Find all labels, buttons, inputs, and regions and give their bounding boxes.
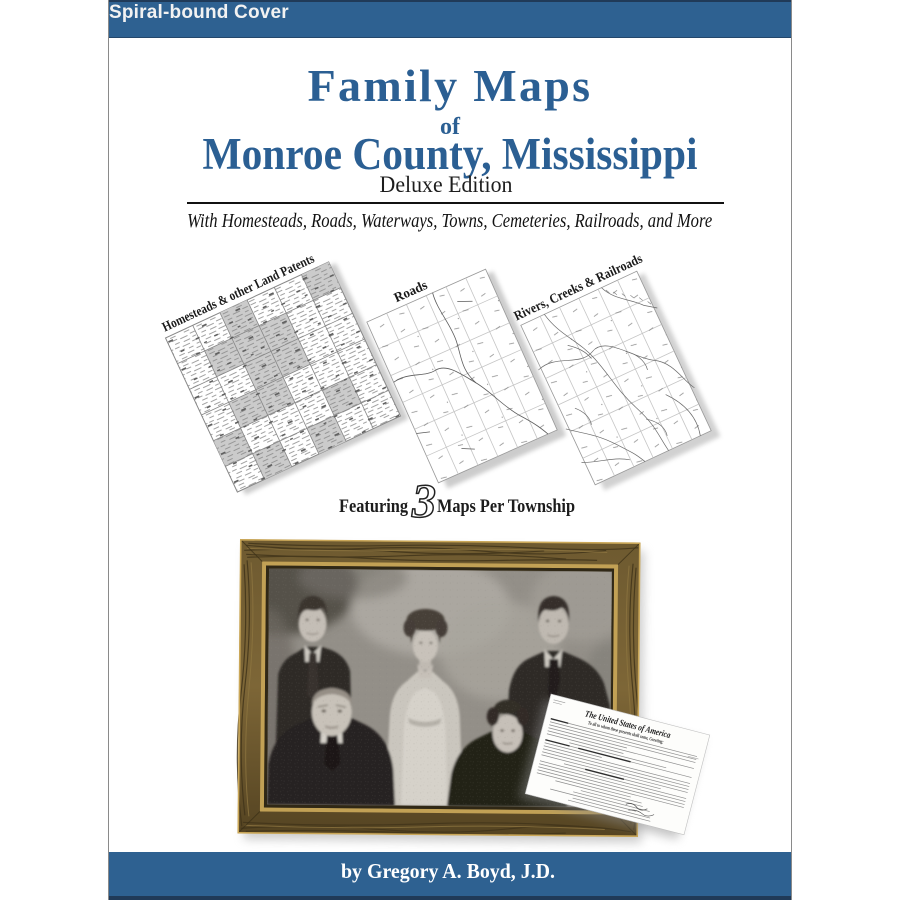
svg-text:Featuring: Featuring [339,496,408,517]
svg-text:3: 3 [411,475,436,528]
svg-text:Maps Per Township: Maps Per Township [437,496,575,517]
svg-text:by Gregory A. Boyd, J.D.: by Gregory A. Boyd, J.D. [341,859,555,883]
